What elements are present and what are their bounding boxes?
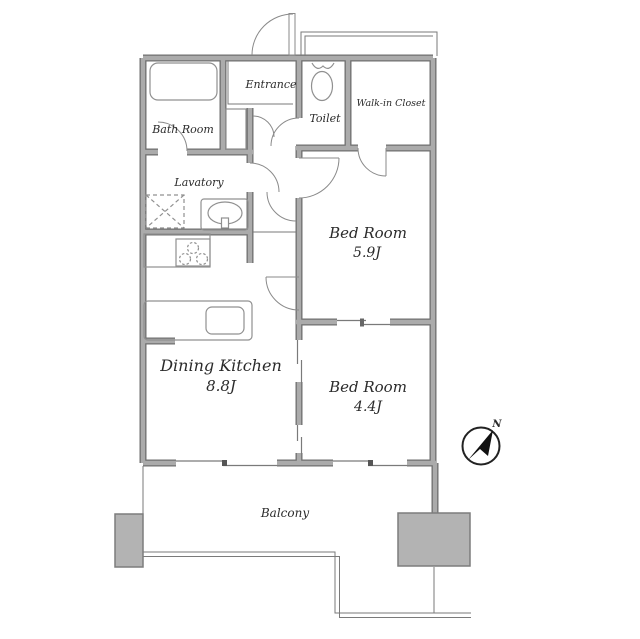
- room-labels: Bath Room Entrance Toilet Walk-in Closet…: [151, 78, 425, 520]
- pillars: [115, 513, 470, 567]
- pillar-right: [398, 513, 470, 566]
- room-size-bedroom2: 4.4J: [353, 399, 383, 415]
- room-label-dining-kitchen: Dining Kitchen: [159, 356, 282, 375]
- hall-door-arc: [267, 192, 296, 221]
- compass-icon: N: [463, 419, 503, 465]
- window-latch: [222, 460, 227, 466]
- room-label-bedroom1: Bed Room: [328, 224, 407, 242]
- washing-machine-fixture: [146, 195, 184, 228]
- entrance-door-leaf: [289, 14, 295, 56]
- fixtures: [144, 63, 334, 340]
- room-label-lavatory: Lavatory: [173, 176, 224, 189]
- compass-north-label: N: [491, 419, 502, 430]
- kitchen-sink-fixture: [144, 301, 252, 340]
- room-label-bath: Bath Room: [151, 123, 214, 136]
- entrance-door-arc: [252, 14, 293, 55]
- toilet-fixture: [312, 63, 335, 101]
- lavatory-door-arc: [250, 163, 279, 192]
- wic-door-arc: [358, 148, 386, 176]
- corridor-railing-inner: [305, 36, 433, 56]
- stove-fixture: [144, 234, 210, 267]
- window-latch: [368, 460, 373, 466]
- room-label-entrance: Entrance: [244, 78, 297, 91]
- hall-closet-door-arc: [253, 116, 274, 137]
- room-label-balcony: Balcony: [260, 506, 309, 520]
- floorplan-page: N Bath Room Entrance Toilet Walk-in Clos…: [0, 0, 640, 639]
- bathtub-fixture: [150, 63, 217, 100]
- shoe-cabinet-fixture: [226, 109, 246, 149]
- room-label-toilet: Toilet: [309, 112, 341, 125]
- dk-door-arc: [266, 277, 299, 310]
- toilet-door-arc: [271, 118, 299, 146]
- room-label-walk-in-closet: Walk-in Closet: [357, 98, 426, 109]
- lavatory-sink-fixture: [201, 199, 248, 230]
- room-size-bedroom1: 5.9J: [353, 245, 382, 261]
- room-label-bedroom2: Bed Room: [328, 378, 407, 396]
- bedroom-sliding-door: [337, 319, 390, 327]
- room-size-dining-kitchen: 8.8J: [206, 377, 237, 395]
- bedroom1-door-arc: [299, 158, 339, 198]
- pillar-left: [115, 514, 143, 567]
- floorplan-canvas: N Bath Room Entrance Toilet Walk-in Clos…: [0, 0, 640, 639]
